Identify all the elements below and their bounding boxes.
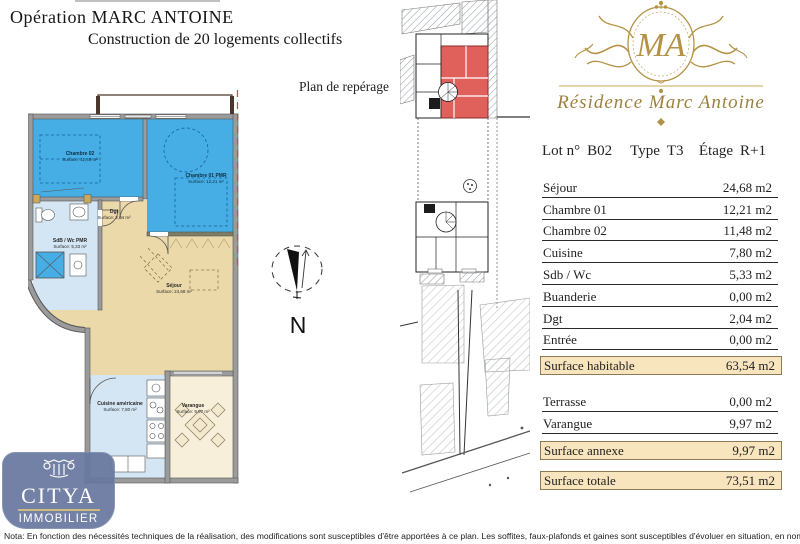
room-areas-table: Séjour24,68 m2 Chambre 0112,21 m2 Chambr…: [542, 176, 778, 350]
table-row: Sdb / Wc5,33 m2: [542, 263, 778, 285]
site-plan-drawing: [400, 0, 530, 510]
lot-value: B02: [587, 143, 612, 160]
floor-value: R+1: [740, 143, 766, 160]
residence-title: Résidence Marc Antoine: [540, 92, 782, 114]
type-value: T3: [667, 143, 684, 160]
table-row: Cuisine7,80 m2: [542, 241, 778, 263]
annex-rows: Terrasse0,00 m2 Varangue9,97 m2: [542, 390, 778, 434]
site-location-plan: [400, 0, 530, 512]
surface-habitable-row: Surface habitable 63,54 m2: [540, 356, 782, 375]
table-row: Dgt2,04 m2: [542, 307, 778, 329]
footer-disclaimer: Nota: En fonction des nécessités techniq…: [4, 531, 800, 541]
table-row: Varangue9,97 m2: [542, 412, 778, 434]
svg-text:MA: MA: [635, 27, 685, 64]
north-compass: N: [268, 243, 328, 339]
scan-artifact-line: [75, 0, 220, 2]
residence-logo: MA Résidence Marc Antoine: [540, 0, 782, 132]
small-ornament-icon: [654, 117, 668, 127]
type-label: Type: [630, 143, 660, 160]
surface-annexe-row: Surface annexe 9,97 m2: [540, 441, 782, 460]
lot-label: Lot n°: [542, 143, 580, 160]
column-capital-icon: [39, 457, 79, 479]
north-label: N: [268, 312, 328, 339]
table-row: Terrasse0,00 m2: [542, 390, 778, 412]
lot-header-line: Lot n° B02 Type T3 Étage R+1: [542, 143, 766, 160]
plan-document-page: Opération MARC ANTOINE Construction de 2…: [0, 0, 800, 544]
citya-divider: [18, 509, 100, 511]
table-row: Buanderie0,00 m2: [542, 285, 778, 307]
floor-label: Étage: [699, 143, 733, 160]
table-row: Séjour24,68 m2: [542, 176, 778, 198]
citya-subtitle: IMMOBILIER: [2, 513, 115, 525]
citya-logo: CITYA IMMOBILIER: [2, 452, 115, 529]
reperage-label: Plan de repérage: [299, 79, 389, 95]
monogram-crest-icon: MA: [541, 0, 781, 96]
floor-plan-drawing: [28, 88, 243, 488]
surface-totale-row: Surface totale 73,51 m2: [540, 471, 782, 490]
highlighted-lot-b02: [441, 46, 488, 118]
operation-subtitle: Construction de 20 logements collectifs: [88, 31, 342, 49]
compass-rose-icon: [268, 243, 328, 301]
balcony-outline: [98, 95, 232, 114]
table-row: Chambre 0211,48 m2: [542, 220, 778, 242]
table-row: Entrée0,00 m2: [542, 329, 778, 351]
apartment-floor-plan: Chambre 02 Surface: 11,48 m² Chambre 01 …: [28, 88, 243, 488]
lot-summary-panel: MA Résidence Marc Antoine Lot n° B02 Typ…: [540, 0, 782, 544]
citya-name: CITYA: [2, 485, 115, 507]
operation-title: Opération MARC ANTOINE: [10, 7, 234, 28]
table-row: Chambre 0112,21 m2: [542, 198, 778, 220]
